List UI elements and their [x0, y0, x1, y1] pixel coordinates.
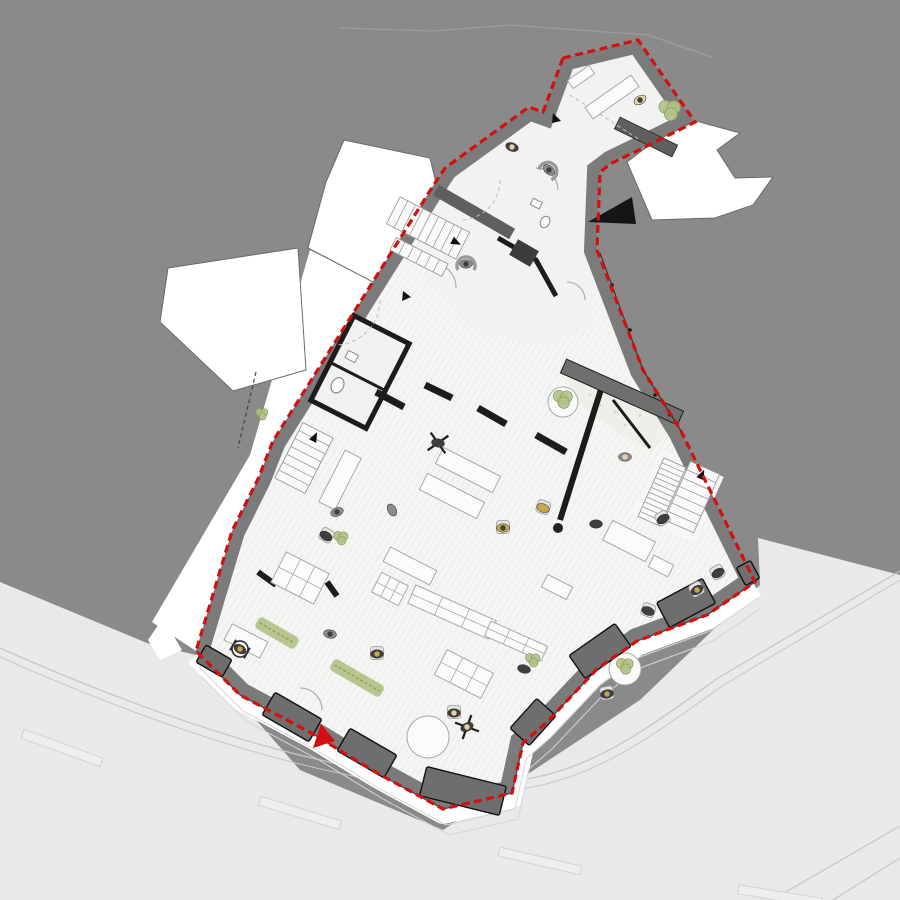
- person: [599, 685, 614, 700]
- ground-floor-site-plan: [0, 0, 900, 900]
- person: [619, 453, 632, 461]
- site-plan-canvas: [0, 0, 900, 900]
- person: [497, 521, 510, 534]
- column: [553, 523, 563, 533]
- person: [448, 706, 461, 719]
- person: [371, 647, 384, 660]
- person: [590, 520, 603, 528]
- round-table: [407, 716, 449, 758]
